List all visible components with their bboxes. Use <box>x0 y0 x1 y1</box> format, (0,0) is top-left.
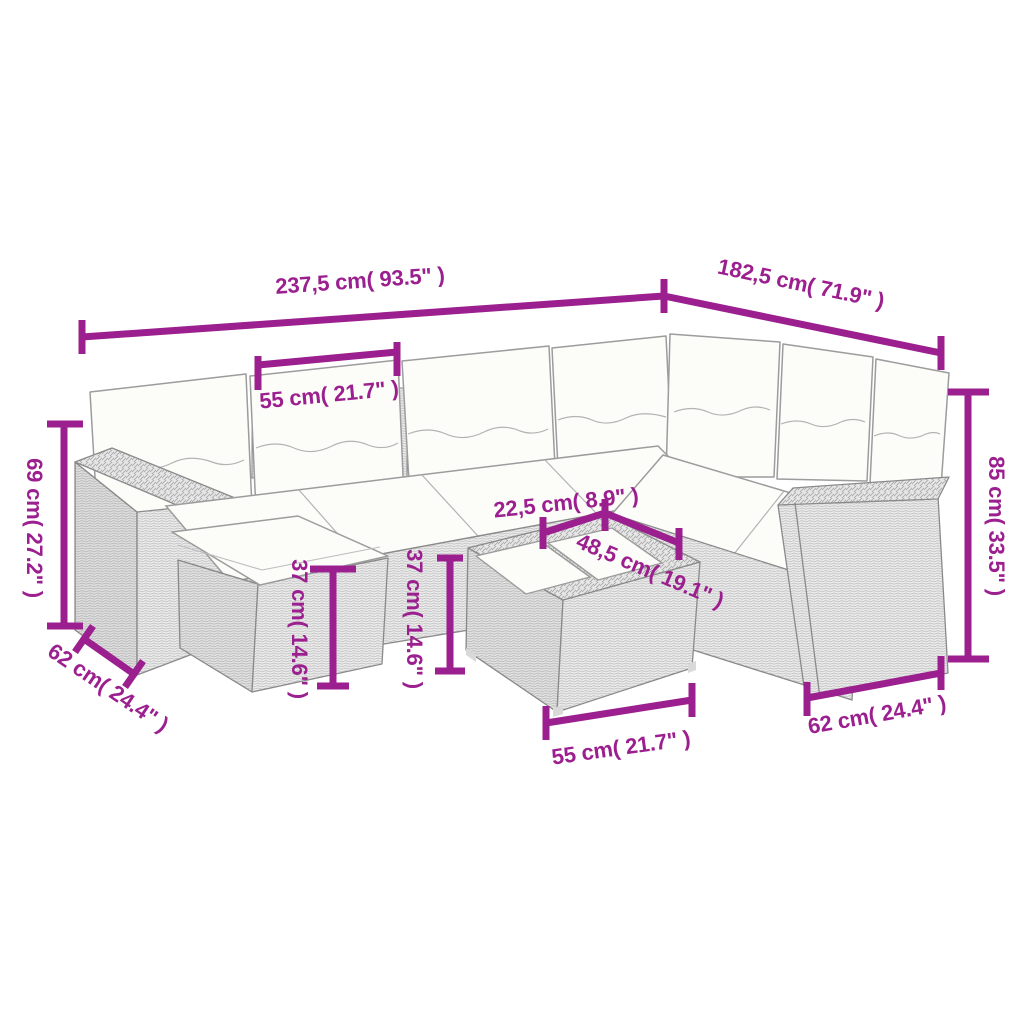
dim-label-footstool-height: 37 cm( 14.6" ) <box>286 559 312 699</box>
dim-label-left-arm-height: 69 cm( 27.2" ) <box>21 458 47 598</box>
dim-label-right-back-height: 85 cm( 33.5" ) <box>983 456 1009 596</box>
right-arm <box>778 477 949 700</box>
dim-label-table-height: 37 cm( 14.6" ) <box>401 549 427 689</box>
footstool <box>172 516 388 692</box>
product-dimension-diagram: 237,5 cm( 93.5" ) 182,5 cm( 71.9" ) 55 c… <box>0 0 1024 1024</box>
